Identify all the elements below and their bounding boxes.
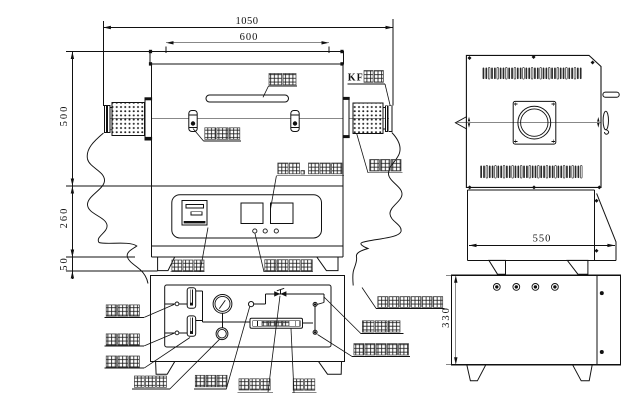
svg-text:1050: 1050 [236, 16, 259, 27]
svg-text:600: 600 [240, 32, 259, 43]
svg-text:550: 550 [533, 234, 552, 245]
svg-text:330: 330 [441, 306, 452, 328]
svg-text:50: 50 [59, 256, 70, 271]
svg-text:KF: KF [348, 73, 364, 84]
svg-text:260: 260 [59, 207, 70, 229]
svg-text:500: 500 [59, 105, 70, 127]
